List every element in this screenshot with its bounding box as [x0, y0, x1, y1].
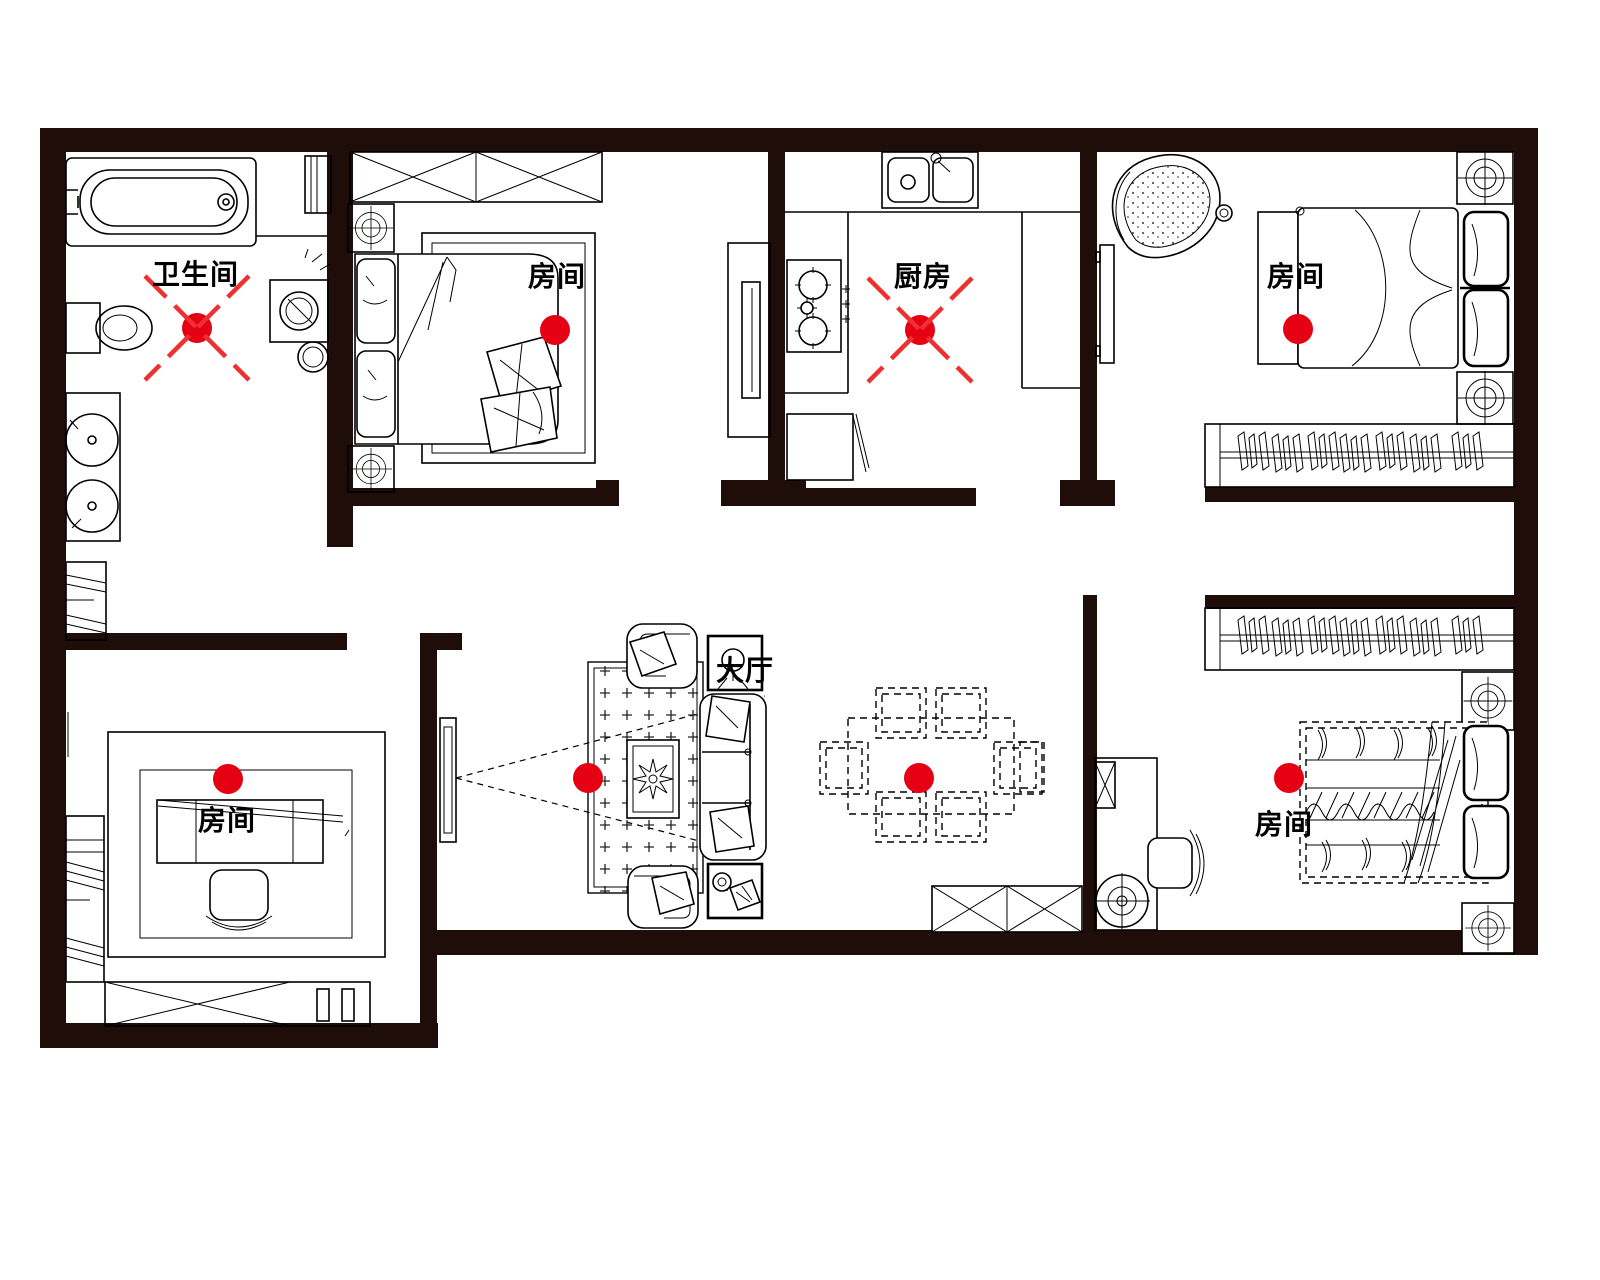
- dining-chair: [820, 742, 868, 794]
- low-cabinet: [105, 982, 370, 1026]
- dining-chair: [994, 742, 1042, 794]
- floor-drain: [298, 342, 328, 372]
- hanging-wardrobe: [1205, 424, 1514, 487]
- stove: [787, 260, 850, 352]
- console-cabinet: [932, 886, 1082, 932]
- room-label-living-hall: 大厅: [716, 656, 774, 687]
- floor-fan: [1094, 873, 1150, 929]
- wardrobe: [350, 152, 602, 202]
- armchair: [627, 624, 697, 688]
- telephone-side-table: [708, 864, 762, 918]
- point-marker-living-hall: [573, 763, 603, 793]
- room-label-bathroom: 卫生间: [152, 260, 239, 291]
- nightstand: [1457, 371, 1513, 425]
- room-label-room-bottom-left: 房间: [198, 806, 256, 837]
- point-marker-bedroom-bottom-right: [1274, 763, 1304, 793]
- bathtub: [66, 158, 327, 246]
- nightstand: [348, 204, 394, 252]
- point-marker-kitchen: [905, 315, 935, 345]
- lounge-chair: [1113, 155, 1232, 258]
- dining-chair: [876, 792, 926, 842]
- double-bed: [1300, 722, 1508, 883]
- desk-chair: [1148, 830, 1204, 896]
- vanity-sinks: [66, 393, 120, 541]
- rug: [108, 732, 385, 957]
- nightstand: [1462, 903, 1514, 953]
- point-marker-room-bottom-left: [213, 764, 243, 794]
- study-furniture: [66, 712, 385, 1026]
- room-label-bedroom-top-right: 房间: [1267, 262, 1325, 293]
- point-marker-bedroom-top-left: [540, 315, 570, 345]
- room-label-bedroom-bottom-right: 房间: [1255, 810, 1313, 841]
- wall-tv: [1096, 245, 1114, 363]
- radiator: [66, 562, 106, 640]
- point-marker-bathroom: [182, 313, 212, 343]
- dining-furniture: [820, 688, 1082, 932]
- chair: [206, 870, 272, 930]
- coffee-table: [627, 740, 679, 818]
- washing-machine: [270, 249, 330, 342]
- kitchen-sink: [882, 152, 978, 208]
- room-label-bedroom-top-left: 房间: [528, 262, 586, 293]
- refrigerator: [787, 414, 869, 480]
- dining-chair: [936, 688, 986, 738]
- armchair: [628, 866, 698, 928]
- bathroom-fixtures: [66, 156, 331, 640]
- room-label-kitchen: 厨房: [894, 262, 952, 293]
- point-marker-dining-area: [904, 763, 934, 793]
- wall-shelf: [1020, 742, 1044, 792]
- tv: [440, 718, 456, 842]
- nightstand: [348, 446, 394, 492]
- point-marker-bedroom-top-right: [1283, 314, 1313, 344]
- nightstand: [1457, 151, 1513, 205]
- shelf-unit: [66, 816, 104, 982]
- hanging-wardrobe: [1205, 608, 1514, 670]
- dining-table: [848, 718, 1014, 814]
- floor-plan-canvas: 卫生间 房间 厨房 房间 房间 大厅 房间: [0, 0, 1600, 1280]
- dining-chair: [936, 792, 986, 842]
- double-bed: [1296, 207, 1510, 368]
- dining-chair: [876, 688, 926, 738]
- sofa: [700, 694, 766, 860]
- floorplan-drawing: [0, 0, 1600, 1280]
- bedroom4-furniture: [1094, 608, 1514, 953]
- wall-cabinet: [728, 243, 770, 437]
